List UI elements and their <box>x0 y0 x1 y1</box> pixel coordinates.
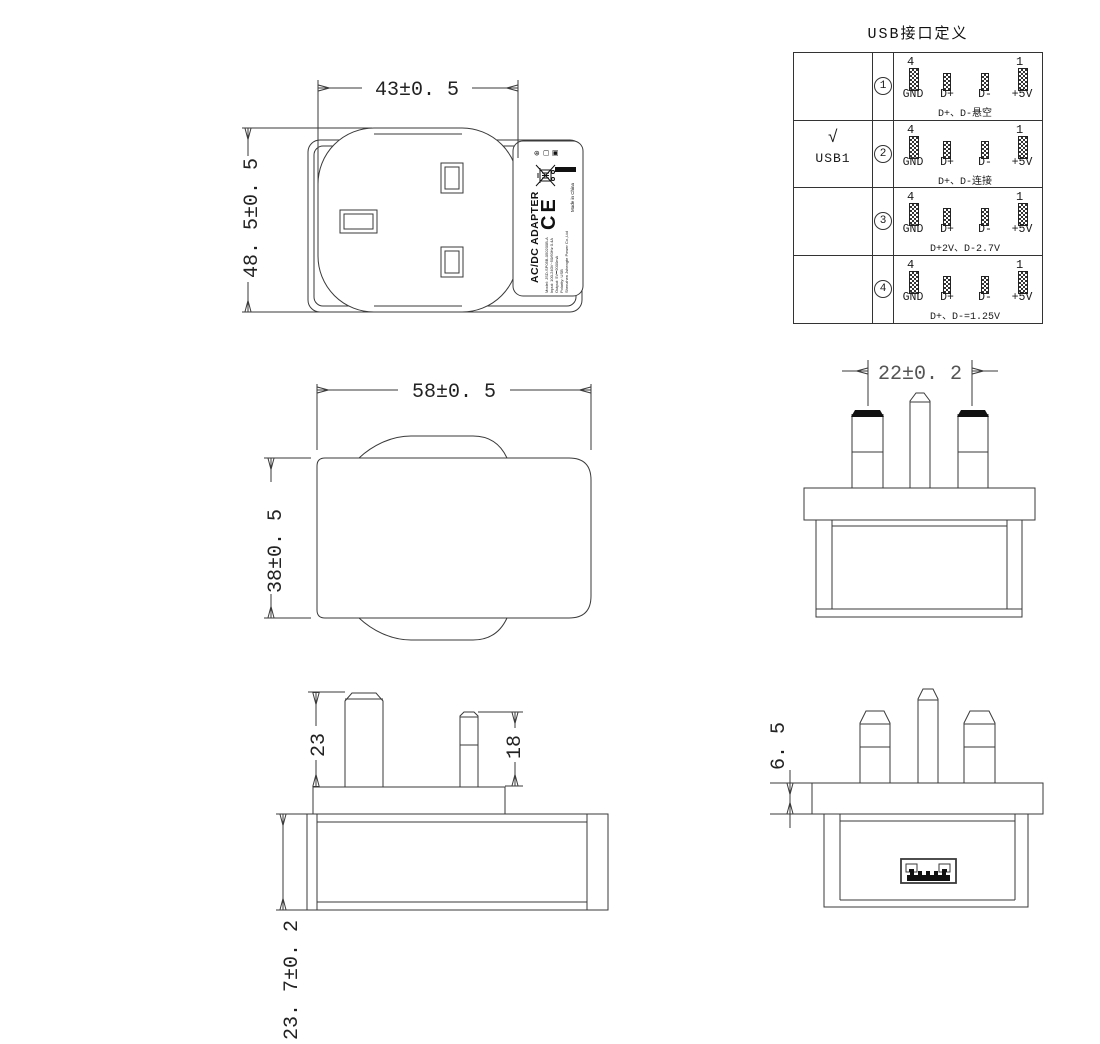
pin-label-5v: +5V <box>1007 156 1037 169</box>
circled-number: 3 <box>874 212 892 230</box>
earth-pin-2 <box>918 689 938 783</box>
pin-label-dplus: D+ <box>932 156 962 169</box>
view-pins-front: 22±0. 2 <box>804 360 1035 617</box>
usb1-label: USB1 <box>815 151 850 166</box>
adapter-side-outline <box>317 458 591 618</box>
live-pin <box>851 410 884 488</box>
dim-pin-spacing: 22±0. 2 <box>878 363 962 386</box>
weee-bin-icon <box>534 163 557 188</box>
pin-definition-cell: 4 1 GND D+ D- +5V D+、D-连接 <box>894 121 1042 188</box>
pin-definition-cell: 4 1 GND D+ D- +5V D+2V、D-2.7V <box>894 188 1042 255</box>
cert-square-icon: ▣ <box>552 150 560 157</box>
pin-label-dplus: D+ <box>932 88 962 101</box>
dim-power-pin-length: 18 <box>504 735 527 759</box>
pin-label-gnd: GND <box>898 88 928 101</box>
circled-number: 1 <box>874 77 892 95</box>
dim-earth-pin-length: 23 <box>308 733 331 757</box>
table-row: √ USB1 2 4 1 GND D+ D- +5V D+、D-连接 <box>794 121 1042 189</box>
dim-front-width: 43±0. 5 <box>375 79 459 102</box>
adapter-technical-drawing: 43±0. 5 48. 5±0. 5 58±0. 5 38±0. 5 <box>0 0 1100 1044</box>
plug-platform <box>313 787 505 814</box>
pin-number-4: 4 <box>907 123 914 137</box>
usb-select-cell <box>794 53 873 120</box>
body-box-side <box>307 814 608 910</box>
pin-label-gnd: GND <box>898 291 928 304</box>
view-usb-front: 6. 5 <box>768 689 1043 907</box>
pin-label-gnd: GND <box>898 223 928 236</box>
earth-pin <box>910 393 930 488</box>
cert-circle-icon: ⊛ <box>534 150 542 156</box>
power-pin-side <box>460 712 478 787</box>
pin-label-dminus: D- <box>970 156 1000 169</box>
adapter-rating-label: AC/DC ADAPTER Model: JSD-SP05B-050200B-A… <box>513 141 583 296</box>
label-manufacturer-line: Shenzhen Jshengte Power Co.,Ltd <box>565 217 570 293</box>
body-box-2 <box>824 814 1028 907</box>
usb-select-cell <box>794 188 873 255</box>
plug-flange <box>804 488 1035 520</box>
pin-number-1: 1 <box>1016 258 1023 272</box>
usb-select-cell: √ USB1 <box>794 121 873 188</box>
pin-number-4: 4 <box>907 258 914 272</box>
pin-note: D+、D-连接 <box>894 172 1036 188</box>
usb-port <box>901 859 956 883</box>
pin-number-1: 1 <box>1016 123 1023 137</box>
usb-definition-table: 1 4 1 GND D+ D- +5V D+、D-悬空 √ USB1 2 4 1 <box>793 52 1043 324</box>
black-bar-icon <box>555 167 576 172</box>
pin-note: D+2V、D-2.7V <box>894 239 1036 255</box>
pin-label-dplus: D+ <box>932 291 962 304</box>
ce-mark: CE <box>538 196 561 230</box>
pin-number-4: 4 <box>907 55 914 69</box>
cert-box-icon: ▢ <box>543 150 551 157</box>
plug-face-oval <box>318 128 518 312</box>
table-row: 1 4 1 GND D+ D- +5V D+、D-悬空 <box>794 53 1042 121</box>
neutral-pin-2 <box>964 711 995 783</box>
pin-label-dminus: D- <box>970 291 1000 304</box>
table-row: 3 4 1 GND D+ D- +5V D+2V、D-2.7V <box>794 188 1042 256</box>
dim-side-height: 38±0. 5 <box>265 509 288 593</box>
pin-definition-cell: 4 1 GND D+ D- +5V D+、D-悬空 <box>894 53 1042 120</box>
check-mark: √ <box>828 130 838 147</box>
pin-number-1: 1 <box>1016 190 1023 204</box>
dim-body-depth: 23. 7±0. 2 <box>281 920 304 1040</box>
cert-icons: ⊛ ▢ ▣ <box>534 146 560 160</box>
usb-table-title: USB接口定义 <box>793 22 1043 43</box>
pin-label-dminus: D- <box>970 88 1000 101</box>
pin-label-5v: +5V <box>1007 88 1037 101</box>
pin-label-5v: +5V <box>1007 223 1037 236</box>
pin-label-dminus: D- <box>970 223 1000 236</box>
usb-select-cell <box>794 256 873 324</box>
table-row: 4 4 1 GND D+ D- +5V D+、D-=1.25V <box>794 256 1042 324</box>
pin-definition-cell: 4 1 GND D+ D- +5V D+、D-=1.25V <box>894 256 1042 324</box>
pin-number-4: 4 <box>907 190 914 204</box>
live-pin-2 <box>860 711 890 783</box>
dim-flange-thickness: 6. 5 <box>768 722 791 770</box>
pin-number-1: 1 <box>1016 55 1023 69</box>
view-side-body: 58±0. 5 38±0. 5 <box>261 378 591 640</box>
pin-label-5v: +5V <box>1007 291 1037 304</box>
earth-pin-side <box>345 693 383 787</box>
plug-flange-2 <box>812 783 1043 814</box>
dim-side-width: 58±0. 5 <box>412 381 496 404</box>
pin-note: D+、D-=1.25V <box>894 307 1036 323</box>
body-box <box>816 520 1022 617</box>
dim-front-height: 48. 5±0. 5 <box>241 158 264 278</box>
neutral-pin <box>957 410 989 488</box>
made-in-china-text: Made in China <box>570 183 575 212</box>
pin-label-gnd: GND <box>898 156 928 169</box>
pin-label-dplus: D+ <box>932 223 962 236</box>
circled-number: 4 <box>874 280 892 298</box>
circled-number: 2 <box>874 145 892 163</box>
pin-note: D+、D-悬空 <box>894 104 1036 120</box>
view-pins-side: 23 18 23. 7±0. 2 <box>276 692 608 1040</box>
